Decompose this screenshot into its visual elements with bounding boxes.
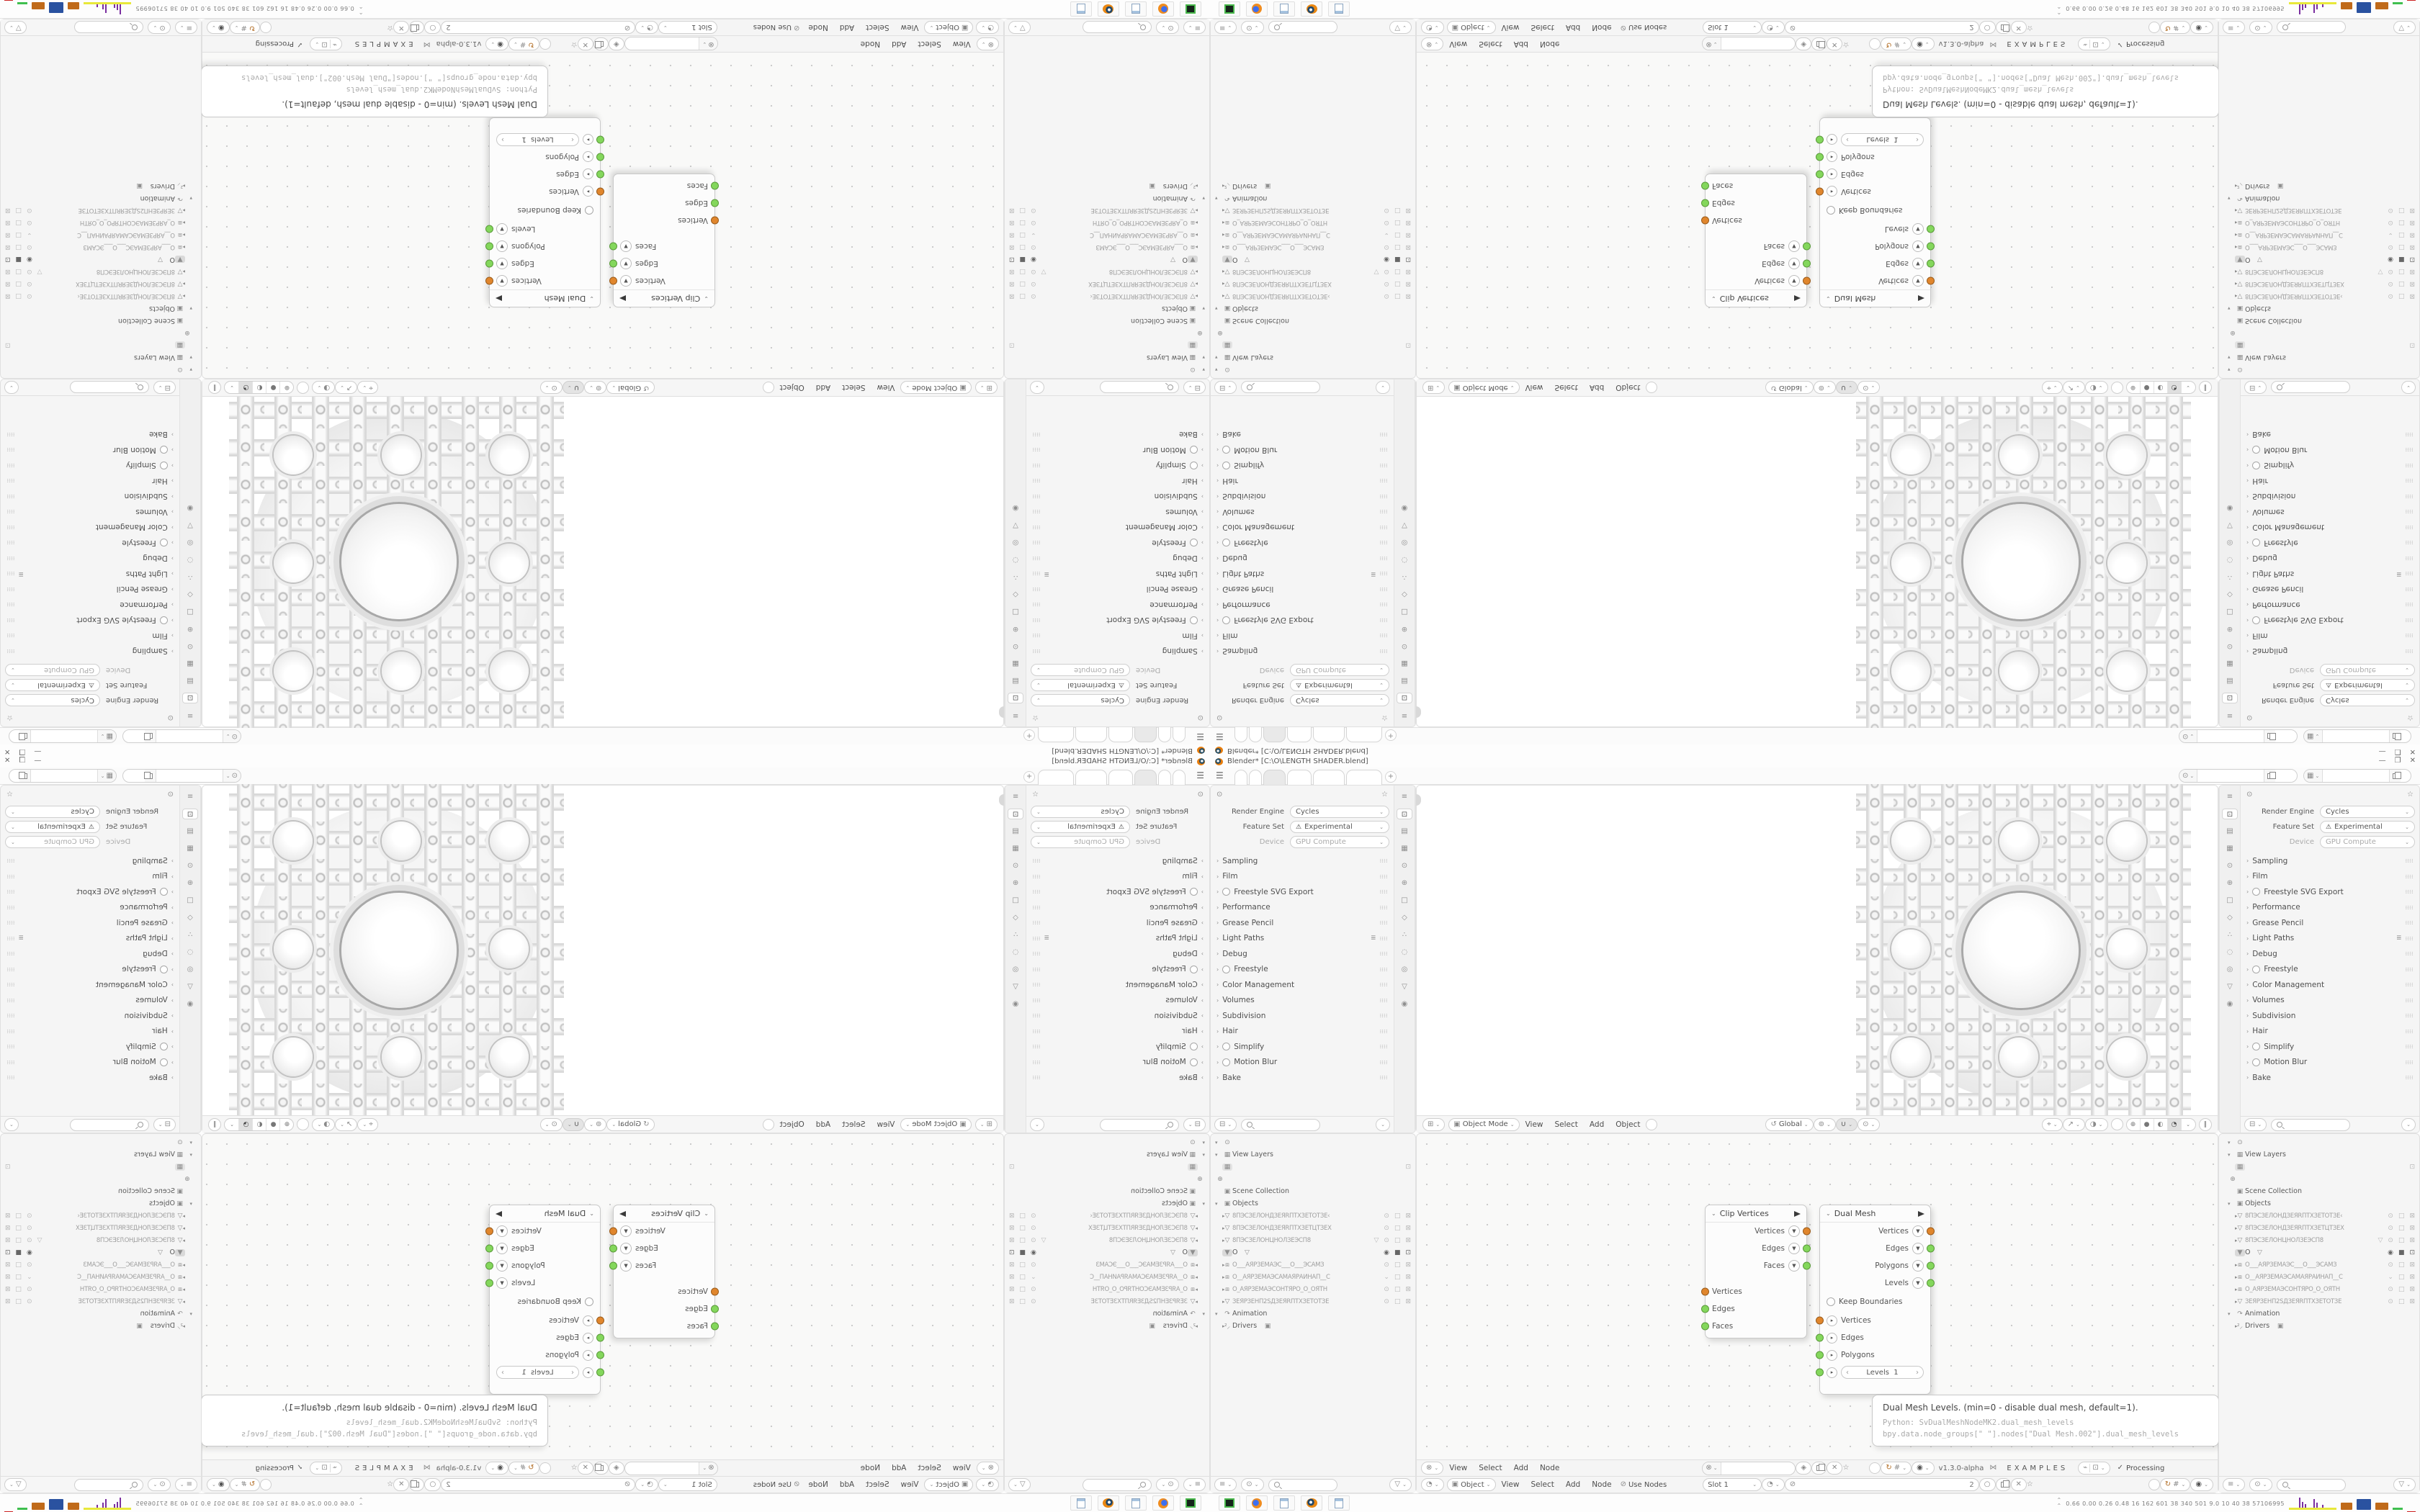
objects-collection-row[interactable]: ▾▣Objects [1, 1197, 197, 1210]
use-nodes-label[interactable]: Use Nodes [1628, 1481, 1667, 1489]
blender-app-icon[interactable] [1098, 1, 1119, 17]
editor-type-button[interactable]: ⊞⌄ [975, 382, 998, 395]
object-row[interactable]: ▸▽8ПЭСЗЕЛОНДЗЕЯRПТХЗЕТОТЗЕ‹⊙□⊠ [2223, 1210, 2419, 1222]
node-menu[interactable]: Node [1540, 1464, 1559, 1472]
sverchok-node-editor[interactable]: ⌄Clip Vertices Vertices▼ Edges▼ Faces▼ V… [1416, 19, 2218, 379]
section-bake[interactable]: ›Bake᎒᎒᎒᎒ [2241, 427, 2419, 443]
section-bake[interactable]: ›Bake᎒᎒᎒᎒ [1211, 427, 1394, 443]
material-tab-icon[interactable]: ◉ [182, 503, 198, 513]
link-input-icon[interactable]: ▸ [583, 1350, 593, 1361]
draft-mode-button[interactable]: ◉⌄ [485, 37, 508, 50]
object-row[interactable]: ▸▽8ПЭСЗЕЛОНДЗЕЯRПТХЗЕТЦТЗЕХ⊙□⊠ [1211, 278, 1415, 290]
section-freestyle-svg[interactable]: ›Freestyle SVG Export᎒᎒᎒᎒ [1211, 613, 1394, 629]
transform-orientation-dropdown[interactable]: ↺Global⌄ [606, 382, 654, 395]
properties-search-input[interactable] [2271, 1119, 2350, 1131]
display-mode-button[interactable]: ⊙⌄ [1241, 21, 1263, 34]
particles-tab-icon[interactable]: ∴ [1008, 930, 1023, 940]
object-row[interactable]: ▸▽8ПЭСЗЕЛОНДЗЕЯRПТХЗЕТОТЗЕ‹⊙□⊠ [2223, 290, 2419, 302]
checkbox[interactable] [2252, 888, 2260, 896]
copy-button[interactable] [1811, 1462, 1827, 1475]
section-grease-pencil[interactable]: ›Grease Pencil᎒᎒᎒᎒ [1211, 915, 1394, 931]
use-nodes-check-icon[interactable]: ⊘ [794, 24, 799, 31]
edges-input-socket[interactable] [1701, 199, 1709, 207]
edges-output-socket[interactable] [609, 1245, 617, 1253]
editor-type-button[interactable]: ◔⌄ [976, 1478, 999, 1491]
render-engine-select[interactable]: Cycles⌄ [1290, 694, 1389, 706]
render-engine-select[interactable]: Cycles⌄ [5, 694, 100, 706]
editor-type-button[interactable]: ≡⌄ [1214, 1478, 1237, 1491]
display-mode-button[interactable]: ⊙⌄ [2249, 1478, 2272, 1491]
section-volumes[interactable]: ›Volumes᎒᎒᎒᎒ [1, 993, 179, 1009]
menu-icon[interactable]: ☰ [1196, 732, 1204, 742]
section-grease-pencil[interactable]: ›Grease Pencil᎒᎒᎒᎒ [1211, 582, 1394, 598]
node-tree-selector[interactable]: ⊗⌄ [624, 1462, 718, 1475]
mode-dropdown[interactable]: ▣Object Mode⌄ [900, 382, 971, 395]
dropdown-button[interactable]: ▼ [1912, 1225, 1924, 1237]
object-row[interactable]: ▸▽8ПЭСЗЕЛОНЦНОЛЗЕЭСП8▽⊙□⊠ [1211, 1234, 1415, 1246]
objects-collection-row[interactable]: ▾▣Objects [2223, 302, 2419, 315]
object-tab-icon[interactable]: □ [2222, 895, 2238, 906]
workspace-tab[interactable] [1173, 727, 1186, 742]
data-tab-icon[interactable]: ▽ [1397, 520, 1412, 531]
modifiers-tab-icon[interactable]: ◇ [1397, 589, 1412, 600]
dropdown-button[interactable]: ▼ [496, 1260, 508, 1272]
vertices-input-socket[interactable] [1701, 1288, 1709, 1296]
link-input-icon[interactable]: ▸ [583, 152, 593, 163]
rendered-shading-icon[interactable]: ◔ [2168, 1119, 2182, 1130]
view-layer-item-row[interactable]: ▦⊡ [1, 1161, 197, 1173]
transform-orientation-dropdown[interactable]: ↺Global⌄ [1765, 382, 1813, 395]
section-film[interactable]: ›Film᎒᎒᎒᎒ [1, 628, 179, 644]
copy-material-button[interactable] [1996, 21, 2011, 34]
editor-type-button[interactable]: ⊟⌄ [2244, 381, 2267, 394]
tool-tab-icon[interactable]: ≡ [1008, 791, 1023, 802]
section-volumes[interactable]: ›Volumes᎒᎒᎒᎒ [2241, 504, 2419, 520]
material-name-field[interactable]: ⊘2 [1785, 1478, 1979, 1491]
workspace-tab[interactable] [1075, 727, 1107, 742]
select-menu[interactable]: Select [866, 23, 889, 32]
vertices-output-socket[interactable] [1927, 1228, 1935, 1236]
faces-input-socket[interactable] [1701, 1323, 1709, 1331]
solid-shading-icon[interactable]: ● [2141, 382, 2154, 394]
view-layer-selector[interactable]: ▦⌄ [9, 769, 117, 783]
pin-icon[interactable]: ☆ [6, 714, 13, 721]
section-film[interactable]: ›Film᎒᎒᎒᎒ [1211, 869, 1394, 885]
display-mode-button[interactable]: ⊙⌄ [2249, 21, 2272, 34]
checkbox[interactable] [160, 539, 168, 546]
levels-output-socket[interactable] [1927, 1279, 1935, 1287]
sverchok-node-editor[interactable]: ⌄Clip Vertices Vertices▼ Edges▼ Faces▼ V… [1416, 1133, 2218, 1493]
protect-button[interactable]: ◈ [1796, 1462, 1811, 1475]
checkbox[interactable] [1190, 888, 1198, 896]
console-app-icon[interactable] [1219, 1495, 1240, 1511]
options-chevron[interactable]: ⌄ [2401, 1118, 2416, 1131]
extra-tool-buttons[interactable]: ⌁⊡⌄ [2078, 1462, 2110, 1475]
material-tab-icon[interactable]: ◉ [182, 999, 198, 1009]
fake-user-button[interactable]: ○ [1979, 21, 1996, 34]
proportional-editing-button[interactable]: ⊙⌄ [1857, 382, 1880, 395]
checkbox[interactable] [1222, 966, 1230, 973]
update-buttons[interactable]: ↻#⌄ [230, 21, 261, 34]
filter-button[interactable]: ▽⌄ [1389, 1478, 1412, 1491]
checkbox[interactable] [160, 462, 168, 469]
gizmo-toggle[interactable]: ⌖⌄ [2042, 382, 2063, 395]
levels-input-socket[interactable] [1816, 1369, 1824, 1377]
checkbox[interactable] [1190, 462, 1198, 469]
section-film[interactable]: ›Film᎒᎒᎒᎒ [2241, 628, 2419, 644]
pause-button[interactable]: ∥ [2199, 1118, 2213, 1131]
link-input-icon[interactable]: ▸ [1827, 1350, 1837, 1361]
checkbox[interactable] [1222, 462, 1230, 469]
scene-tab-icon[interactable]: ⊙ [1008, 641, 1023, 652]
object-row[interactable]: ▸⧈O_АЯРЗЕМАЭСОНТЯРО_O_ОЯТН⊙□⊠ [1, 217, 197, 229]
snap-target-button[interactable]: ⊚⌄ [584, 1118, 606, 1131]
view-layer-selector[interactable]: ▦⌄ [2303, 769, 2411, 783]
rendered-shading-icon[interactable]: ◔ [239, 382, 253, 394]
browse-material-button[interactable]: ◔⌄ [635, 1478, 658, 1491]
node-menu[interactable]: Node [861, 1464, 880, 1472]
output-tab-icon[interactable]: ▤ [2222, 675, 2238, 686]
section-bake[interactable]: ›Bake᎒᎒᎒᎒ [1, 427, 179, 443]
view-menu[interactable]: View [1525, 384, 1543, 392]
calculator-icon[interactable] [1070, 1, 1092, 17]
section-subdivision[interactable]: ›Subdivision᎒᎒᎒᎒ [1211, 489, 1394, 505]
render-tab-icon[interactable]: ⊡ [2222, 693, 2238, 703]
firefox-icon[interactable] [1152, 1495, 1174, 1511]
section-debug[interactable]: ›Debug᎒᎒᎒᎒ [1026, 946, 1209, 962]
section-volumes[interactable]: ›Volumes᎒᎒᎒᎒ [1211, 993, 1394, 1009]
animation-row[interactable]: ▾↷Animation [1005, 192, 1209, 204]
view-menu[interactable]: View [901, 1480, 919, 1489]
view-layer-name-field[interactable] [31, 730, 97, 742]
outliner-search-input[interactable] [74, 1479, 143, 1491]
xray-toggle[interactable]: ◑⌄ [2085, 1118, 2108, 1131]
physics-tab-icon[interactable]: ◌ [1397, 554, 1412, 565]
scene-selector[interactable]: ⊙⌄ [2179, 729, 2298, 743]
section-performance[interactable]: ›Performance᎒᎒᎒᎒ [2241, 900, 2419, 916]
minimize-button[interactable]: — [2379, 757, 2386, 765]
world-tab-icon[interactable]: ⊕ [1397, 624, 1412, 634]
collapse-icon[interactable]: ⌄ [1826, 1210, 1831, 1217]
objects-collection-row[interactable]: ▾▣Objects [1211, 302, 1415, 315]
objects-collection-row[interactable]: ▾▣Objects [1005, 302, 1209, 315]
drivers-row[interactable]: ▸²⸝Drivers▣ [1, 1320, 197, 1332]
physics-tab-icon[interactable]: ◌ [1397, 947, 1412, 958]
preset-icon[interactable]: ≣ [1044, 570, 1049, 577]
section-sampling[interactable]: ›Sampling᎒᎒᎒᎒ [2241, 644, 2419, 660]
add-menu[interactable]: Add [840, 23, 854, 32]
new-view-layer-button[interactable] [19, 730, 31, 742]
object-tab-icon[interactable]: □ [182, 895, 198, 906]
vertices-output-socket[interactable] [609, 277, 617, 285]
filter-button[interactable]: ▽⌄ [1008, 21, 1031, 34]
section-film[interactable]: ›Film᎒᎒᎒᎒ [1026, 628, 1209, 644]
section-motion-blur[interactable]: ›Motion Blur᎒᎒᎒᎒ [2241, 442, 2419, 458]
view-layer-tab-icon[interactable]: ▦ [1397, 658, 1412, 669]
editor-type-button[interactable]: ≡⌄ [1214, 21, 1237, 34]
scene-collection-row[interactable]: ▣Scene Collection [2223, 315, 2419, 327]
editor-type-button[interactable]: ≡⌄ [175, 21, 197, 34]
shader-type-dropdown[interactable]: ▣Object⌄ [924, 21, 973, 34]
protect-button[interactable]: ◈ [1796, 37, 1811, 50]
shader-type-dropdown[interactable]: ▣Object⌄ [924, 1478, 973, 1491]
workspace-tab[interactable] [1346, 727, 1382, 742]
render-tab-icon[interactable]: ⊡ [1008, 693, 1023, 703]
preset-icon[interactable]: ≣ [2396, 570, 2402, 577]
menu-icon[interactable]: ☰ [1216, 732, 1224, 742]
snap-magnet-button[interactable]: ∪⌄ [1836, 382, 1857, 395]
tray-expand-icon[interactable]: ⌃⌃ [2057, 3, 2062, 14]
calculator-icon[interactable] [1125, 1, 1147, 17]
examples-menu[interactable]: EXAMPLES [2007, 1464, 2068, 1472]
select-menu[interactable]: Select [842, 384, 865, 392]
link-input-icon[interactable]: ▸ [583, 169, 593, 180]
select-menu[interactable]: Select [1531, 1480, 1554, 1489]
object-row[interactable]: ▸▽8ПЭСЗЕЛОНДЗЕЯRПТХЗЕТЦТЗЕХ⊙□⊠ [1, 1222, 197, 1234]
proportional-editing-button[interactable]: ⊙⌄ [540, 382, 563, 395]
link-input-icon[interactable]: ▸ [1827, 152, 1837, 163]
dropdown-button[interactable]: ▼ [1788, 258, 1800, 269]
object-row[interactable]: ▸▽8ПЭСЗЕЛОНДЗЕЯRПТХЗЕТЦТЗЕХ⊙□⊠ [1005, 278, 1209, 290]
section-volumes[interactable]: ›Volumes᎒᎒᎒᎒ [1211, 504, 1394, 520]
faces-input-socket[interactable] [1701, 182, 1709, 190]
preset-icon[interactable]: ≣ [1371, 935, 1376, 942]
workspace-tab[interactable] [1313, 727, 1345, 742]
dropdown-button[interactable]: ▼ [1912, 1243, 1924, 1254]
vertices-input-socket[interactable] [1701, 217, 1709, 225]
section-debug[interactable]: ›Debug᎒᎒᎒᎒ [2241, 551, 2419, 567]
world-row[interactable]: ⊕ [1211, 1173, 1415, 1185]
section-freestyle-svg[interactable]: ›Freestyle SVG Export᎒᎒᎒᎒ [1211, 884, 1394, 900]
levels-output-socket[interactable] [485, 225, 493, 233]
physics-tab-icon[interactable]: ◌ [182, 947, 198, 958]
new-view-layer-button[interactable] [19, 770, 31, 782]
section-freestyle-svg[interactable]: ›Freestyle SVG Export᎒᎒᎒᎒ [1, 613, 179, 629]
pin-icon[interactable]: ☆ [1381, 791, 1388, 798]
section-freestyle[interactable]: ›Freestyle᎒᎒᎒᎒ [1026, 535, 1209, 551]
dropdown-button[interactable]: ▼ [1912, 275, 1924, 287]
section-color-management[interactable]: ›Color Management᎒᎒᎒᎒ [1211, 520, 1394, 536]
render-tab-icon[interactable]: ⊡ [1397, 693, 1412, 703]
object-row[interactable]: ▸⧈O__АЯРЗЕМАЭСАМАЯРАИНАП__С⌄□⊠ [1, 229, 197, 241]
editor-type-button[interactable]: ⊞⌄ [1422, 382, 1445, 395]
feature-set-select[interactable]: ⚠ Experimental⌄ [5, 679, 100, 691]
new-scene-button[interactable] [2264, 770, 2275, 782]
object-row[interactable]: ▸⧈O__АЯРЗЕМАЭСАМАЯРАИНАП__С⌄□⊠ [1005, 229, 1209, 241]
view-menu[interactable]: View [877, 384, 895, 392]
dropdown-button[interactable]: ▼ [496, 1277, 508, 1289]
workspace-tab[interactable] [1108, 770, 1133, 785]
object-row[interactable]: ▸⧈O__АЯРЗЕМАЭСАМАЯРАИНАП__С⌄□⊠ [1005, 1271, 1209, 1283]
data-tab-icon[interactable]: ▽ [1397, 981, 1412, 992]
display-mode-button[interactable]: ⊙⌄ [1156, 1478, 1178, 1491]
object-row[interactable]: ▸⧈O___АЯРЗЕМАЭС___O___ЭСАМЗ⊙□⊠ [1, 1259, 197, 1271]
pause-button[interactable]: ∥ [208, 1118, 222, 1131]
preset-icon[interactable]: ≣ [2396, 935, 2402, 942]
constraints-tab-icon[interactable]: ◎ [1008, 537, 1023, 548]
modifiers-tab-icon[interactable]: ◇ [2222, 912, 2238, 923]
options-chevron[interactable]: ⌄ [4, 1118, 19, 1131]
physics-tab-icon[interactable]: ◌ [182, 554, 198, 565]
edges-input-socket[interactable] [596, 1334, 604, 1342]
levels-output-socket[interactable] [1927, 225, 1935, 233]
outliner-root-row[interactable]: ▾⊙ [2223, 364, 2419, 376]
faces-output-socket[interactable] [609, 243, 617, 251]
tool-tab-icon[interactable]: ≡ [1008, 710, 1023, 721]
constraints-tab-icon[interactable]: ◎ [182, 537, 198, 548]
object-menu[interactable]: Object [1615, 1120, 1640, 1129]
world-tab-icon[interactable]: ⊕ [182, 878, 198, 888]
options-chevron[interactable]: ⌄ [1030, 381, 1044, 394]
object-row[interactable]: ▸▽8ПЭСЗЕЛОНДЗЕЯRПТХЗЕТОТЗЕ‹⊙□⊠ [1005, 1210, 1209, 1222]
section-freestyle[interactable]: ›Freestyle᎒᎒᎒᎒ [1211, 962, 1394, 978]
tool-tab-icon[interactable]: ≡ [182, 791, 198, 802]
draft-mode-button[interactable]: ◉⌄ [207, 1478, 230, 1491]
section-light-paths[interactable]: ›Light Paths≣᎒᎒᎒᎒ [1, 566, 179, 582]
scene-collection-row[interactable]: ▣Scene Collection [1211, 1185, 1415, 1197]
examples-menu[interactable]: EXAMPLES [2007, 40, 2068, 48]
extra-tool-buttons[interactable]: ⌁⊡⌄ [2078, 37, 2110, 50]
workspace-tab-active[interactable] [1263, 727, 1286, 742]
dropdown-button[interactable]: ▼ [496, 1225, 508, 1237]
view-layer-item-row[interactable]: ▦⊡ [1211, 339, 1415, 351]
update-buttons[interactable]: ↻#⌄ [230, 1478, 261, 1491]
world-row[interactable]: ⊕ [1211, 327, 1415, 339]
levels-slider[interactable]: ‹Levels 1› [1841, 1366, 1924, 1379]
section-color-management[interactable]: ›Color Management᎒᎒᎒᎒ [1211, 977, 1394, 993]
unlink-material-button[interactable]: ✕ [393, 1478, 409, 1491]
section-color-management[interactable]: ›Color Management᎒᎒᎒᎒ [1026, 520, 1209, 536]
scene-collection-row[interactable]: ▣Scene Collection [1, 315, 197, 327]
levels-slider[interactable]: ‹Levels 1› [496, 1366, 579, 1379]
pin-icon[interactable]: ☆ [571, 1464, 578, 1472]
levels-output-socket[interactable] [485, 1279, 493, 1287]
new-tree-circle[interactable] [539, 1462, 551, 1474]
use-nodes-label[interactable]: Use Nodes [753, 24, 792, 32]
section-grease-pencil[interactable]: ›Grease Pencil᎒᎒᎒᎒ [1026, 582, 1209, 598]
firefox-icon[interactable] [1152, 1, 1174, 17]
faces-output-socket[interactable] [1803, 1262, 1811, 1270]
section-simplify[interactable]: ›Simplify᎒᎒᎒᎒ [1211, 1039, 1394, 1055]
node-menu[interactable]: Node [808, 1480, 828, 1489]
section-light-paths[interactable]: ›Light Paths≣᎒᎒᎒᎒ [1, 931, 179, 947]
dropdown-button[interactable]: ▼ [1912, 240, 1924, 252]
section-debug[interactable]: ›Debug᎒᎒᎒᎒ [1, 551, 179, 567]
view-menu[interactable]: View [1449, 40, 1467, 48]
section-grease-pencil[interactable]: ›Grease Pencil᎒᎒᎒᎒ [2241, 915, 2419, 931]
section-motion-blur[interactable]: ›Motion Blur᎒᎒᎒᎒ [1, 1055, 179, 1071]
object-row[interactable]: ▸▽ЗЕЯРЗЕНП2SДЗЕЯRПТХЗЕТОТЗЕ⊙□⊠ [1211, 204, 1415, 217]
properties-search-input[interactable] [70, 1119, 149, 1131]
object-row[interactable]: ▸⧈O_АЯРЗЕМАЭСОНТЯРО_O_ОЯТН⊙□⊠ [1211, 217, 1415, 229]
object-row[interactable]: ▸▽8ПЭСЗЕЛОНЦНОЛЗЕЭСП8▽⊙□⊠ [1, 1234, 197, 1246]
feature-set-select[interactable]: ⚠ Experimental⌄ [1031, 679, 1130, 691]
scene-collection-row[interactable]: ▣Scene Collection [1005, 1185, 1209, 1197]
edges-output-socket[interactable] [1927, 260, 1935, 268]
workspace-tab[interactable] [1287, 727, 1312, 742]
new-scene-button[interactable] [2264, 730, 2275, 742]
vertices-output-socket[interactable] [1803, 1228, 1811, 1236]
scene-tab-icon[interactable]: ⊙ [2222, 860, 2238, 871]
dropdown-button[interactable]: ▼ [1912, 1277, 1924, 1289]
node-tree-selector[interactable]: ⊗⌄ [1702, 1462, 1796, 1475]
edges-output-socket[interactable] [1803, 1245, 1811, 1253]
mode-dropdown[interactable]: ▣Object Mode⌄ [1448, 382, 1519, 395]
use-nodes-check-icon[interactable]: ⊘ [1621, 24, 1626, 31]
checkbox[interactable] [1222, 888, 1230, 896]
editor-type-button[interactable]: ⊟⌄ [153, 1118, 176, 1131]
viewport-3d[interactable]: ⊞⌄ ▣Object Mode⌄ View Select Add Object … [1416, 379, 2218, 727]
dropdown-button[interactable]: ▼ [496, 240, 508, 252]
workspace-tab[interactable] [1075, 770, 1107, 785]
output-tab-icon[interactable]: ▤ [2222, 826, 2238, 837]
material-tab-icon[interactable]: ◉ [2222, 503, 2238, 513]
edges-input-socket[interactable] [1701, 1305, 1709, 1313]
edges-output-socket[interactable] [485, 1245, 493, 1253]
render-tab-icon[interactable]: ⊡ [182, 693, 198, 703]
node-menu[interactable]: Node [1592, 1480, 1611, 1489]
object-row[interactable]: ▸▽ЗЕЯРЗЕНП2SДЗЕЯRПТХЗЕТОТЗЕ⊙□⊠ [1, 204, 197, 217]
browse-material-button[interactable]: ◔⌄ [1762, 1478, 1785, 1491]
object-menu[interactable]: Object [780, 384, 805, 392]
unlink-button[interactable]: ✕ [1827, 37, 1842, 50]
calculator-icon[interactable] [1328, 1495, 1350, 1511]
clip-vertices-node[interactable]: ⌄Clip Vertices Vertices▼ Edges▼ Faces▼ V… [1705, 1205, 1807, 1338]
section-performance[interactable]: ›Performance᎒᎒᎒᎒ [2241, 597, 2419, 613]
add-menu[interactable]: Add [1514, 1464, 1528, 1472]
workspace-tab-active[interactable] [1263, 770, 1286, 785]
section-bake[interactable]: ›Bake᎒᎒᎒᎒ [1, 1070, 179, 1086]
wireframe-shading-icon[interactable]: ⊕ [280, 382, 294, 394]
outliner-root-row[interactable]: ▾⊙ [1211, 364, 1415, 376]
calculator-icon[interactable] [1328, 1, 1350, 17]
world-tab-icon[interactable]: ⊕ [1008, 878, 1023, 888]
workspace-tab[interactable] [1249, 770, 1262, 785]
processing-label[interactable]: Processing [2126, 40, 2164, 48]
workspace-tab[interactable] [1287, 770, 1312, 785]
drivers-row[interactable]: ▸²⸝Drivers▣ [1005, 1320, 1209, 1332]
object-row[interactable]: ▸▽ЗЕЯРЗЕНП2SДЗЕЯRПТХЗЕТОТЗЕ⊙□⊠ [2223, 204, 2419, 217]
select-menu[interactable]: Select [842, 1120, 865, 1129]
object-row-selected[interactable]: ▸▼O▽◉■⊡ [1005, 253, 1209, 266]
scene-collection-row[interactable]: ▣Scene Collection [1211, 315, 1415, 327]
protect-button[interactable]: ◈ [609, 37, 624, 50]
view-layer-item-row[interactable]: ▦⊡ [1005, 339, 1209, 351]
editor-type-button[interactable]: ⊟⌄ [1183, 1118, 1206, 1131]
section-sampling[interactable]: ›Sampling᎒᎒᎒᎒ [2241, 853, 2419, 869]
editor-type-button[interactable]: ⊟⌄ [2244, 1118, 2267, 1131]
modifiers-tab-icon[interactable]: ◇ [182, 589, 198, 600]
section-performance[interactable]: ›Performance᎒᎒᎒᎒ [1026, 900, 1209, 916]
material-tab-icon[interactable]: ◉ [1397, 503, 1412, 513]
section-simplify[interactable]: ›Simplify᎒᎒᎒᎒ [2241, 458, 2419, 474]
particles-tab-icon[interactable]: ∴ [2222, 930, 2238, 940]
firefox-icon[interactable] [1246, 1495, 1268, 1511]
view-layer-item-row[interactable]: ▦⊡ [1, 339, 197, 351]
new-scene-button[interactable] [145, 770, 156, 782]
console-app-icon[interactable] [1219, 1, 1240, 17]
outliner-root-row[interactable]: ▾⊙ [1005, 1136, 1209, 1148]
levels-slider[interactable]: ‹Levels 1› [496, 133, 579, 146]
examples-menu[interactable]: EXAMPLES [352, 40, 413, 48]
modifiers-tab-icon[interactable]: ◇ [2222, 589, 2238, 600]
checkbox[interactable] [2252, 539, 2260, 546]
object-tab-icon[interactable]: □ [2222, 606, 2238, 617]
section-freestyle-svg[interactable]: ›Freestyle SVG Export᎒᎒᎒᎒ [2241, 884, 2419, 900]
material-tab-icon[interactable]: ◉ [1008, 999, 1023, 1009]
checkbox[interactable] [1222, 539, 1230, 546]
shader-type-dropdown[interactable]: ▣Object⌄ [1447, 1478, 1496, 1491]
